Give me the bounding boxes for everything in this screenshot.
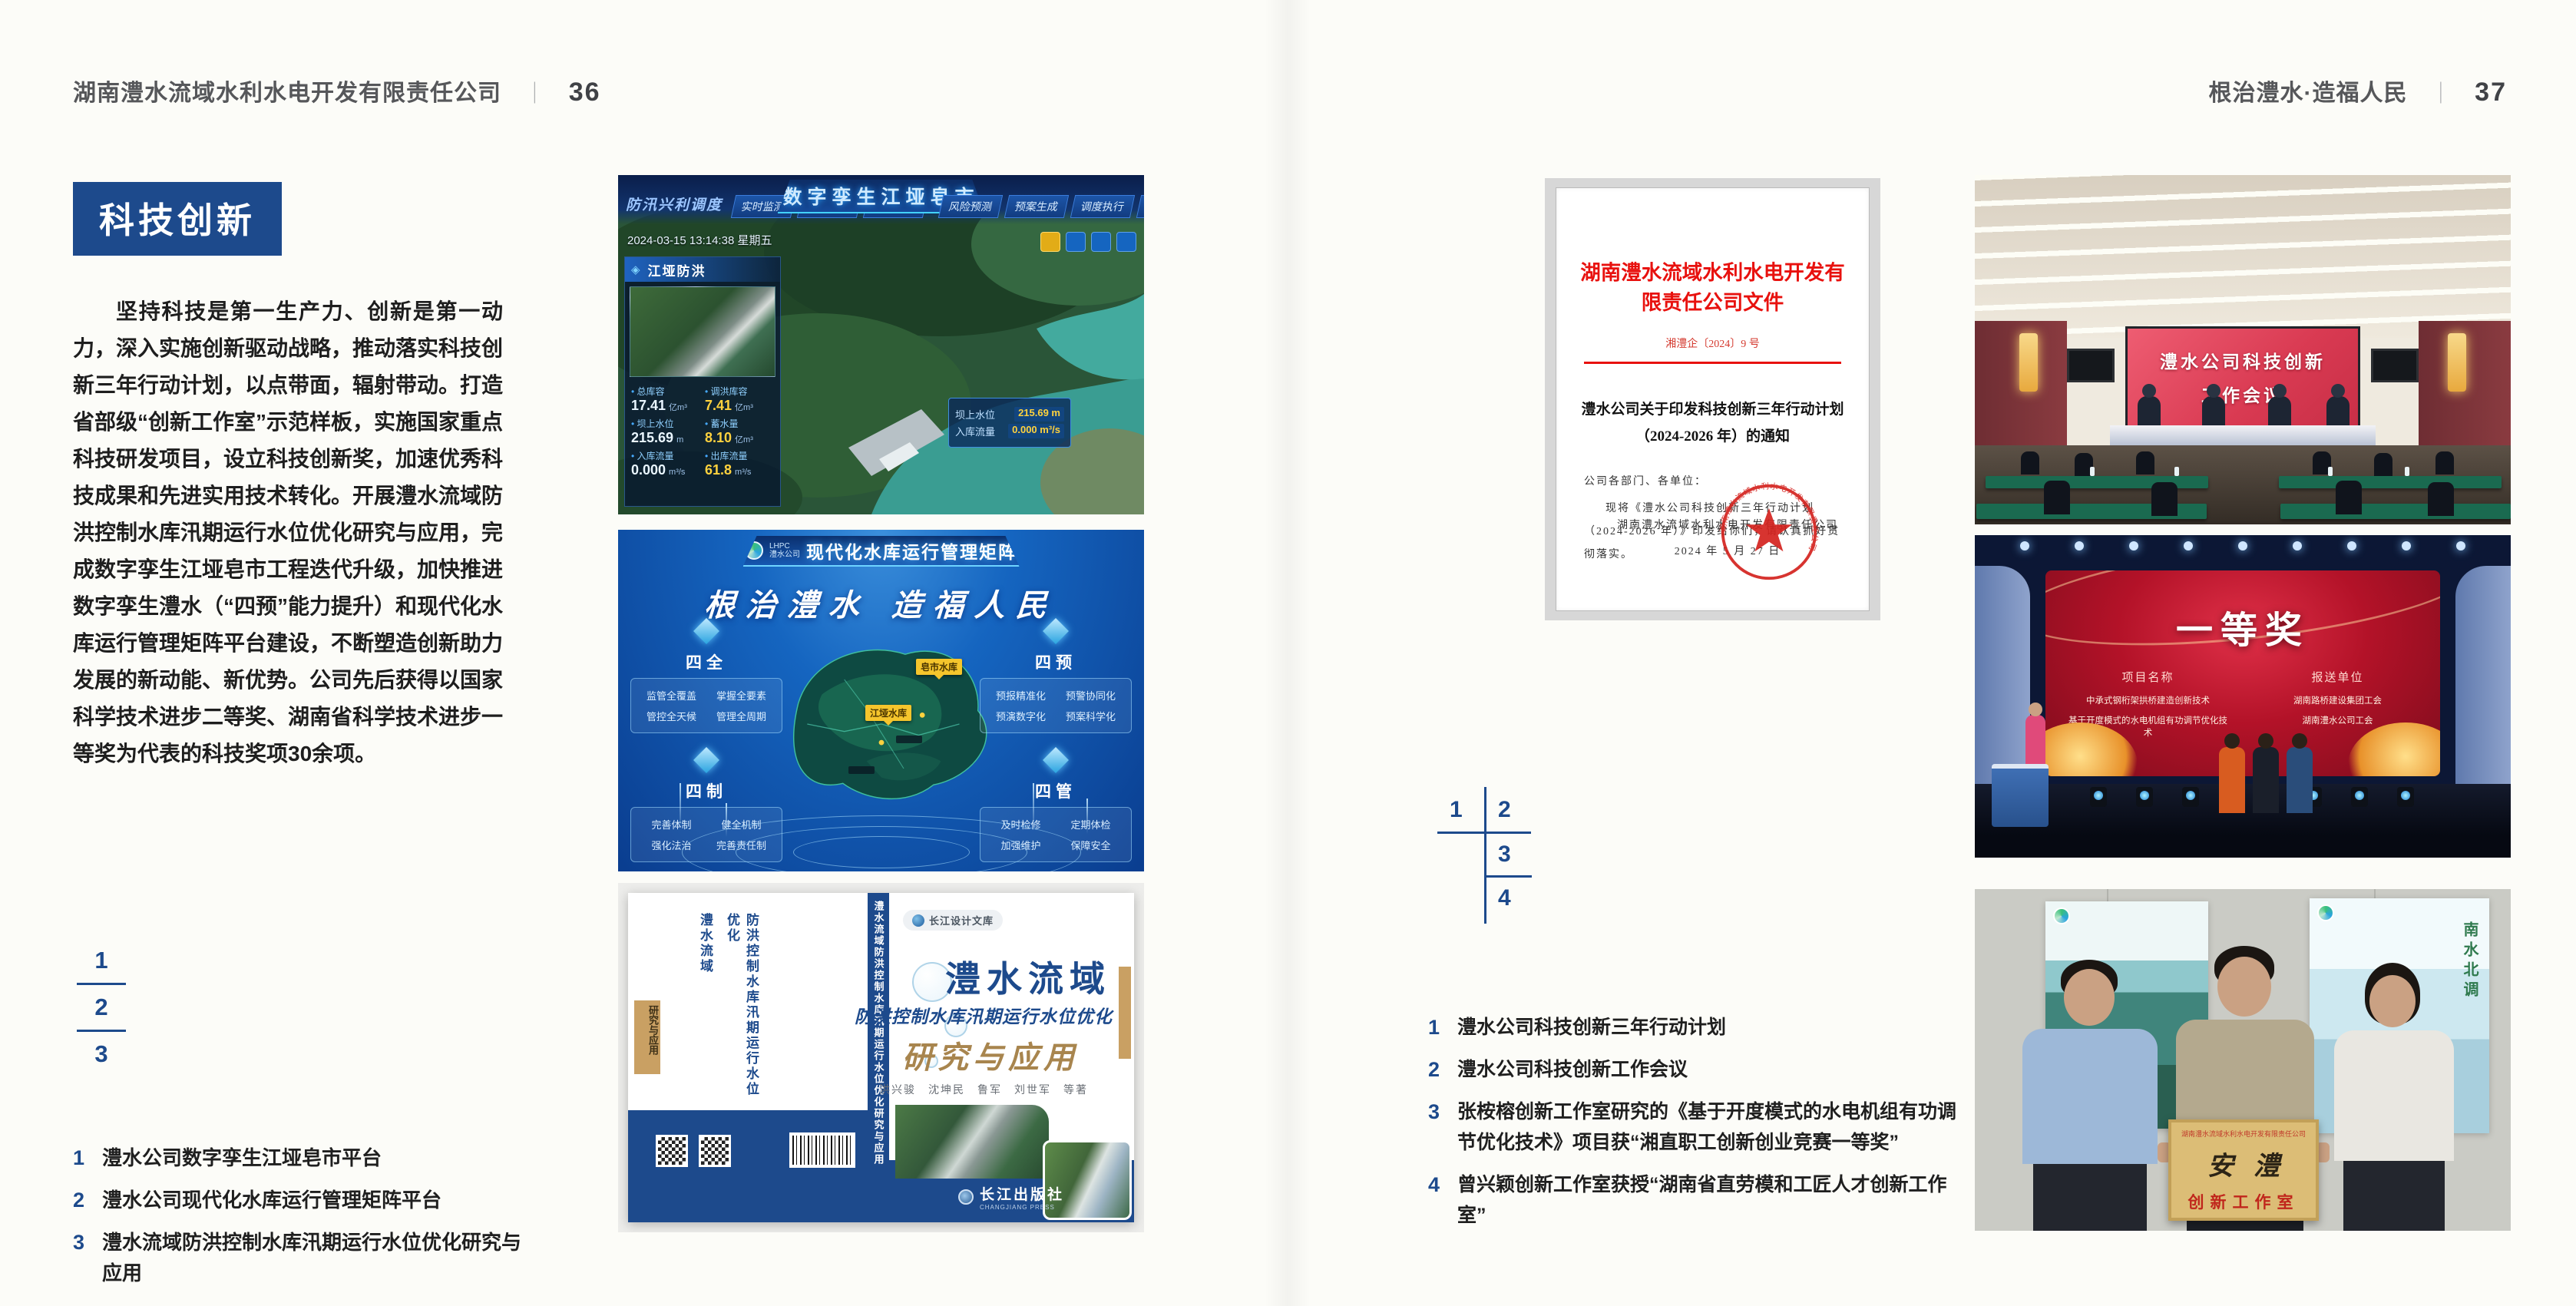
right-page-header: 根治澧水·造福人民 ｜ 37 [2208,74,2507,107]
stage-spotlights [1975,541,2511,551]
platform-corner-label: 防汛兴利调度 [626,193,723,214]
stage-light-fixture [2136,787,2153,807]
page-number-left: 36 [569,78,601,107]
layers-icon [1066,232,1086,252]
water-bottle [2174,467,2179,476]
awardee-blue-figure [2287,747,2313,813]
figure-index-number: 1 [1450,797,1463,823]
lectern [1992,764,2049,827]
tab-risk-forecast: 风险预测 [938,195,1003,218]
attendee-silhouette [2151,482,2178,516]
header-separator: ｜ [2430,81,2452,105]
basin-terrain-map [755,613,1008,835]
caption-row: 3 澧水流域防洪控制水库汛期运行水位优化研究与应用 [73,1227,534,1288]
figure-first-prize-award-photo: 一等奖 项目名称 中承式钢桁架拱桥建造创新技术 基于开度模式的水电机组有功调节优… [1975,535,2511,858]
caption-number: 3 [73,1227,102,1288]
light-pillar [1033,783,1034,831]
figure-innovation-work-meeting-photo: 澧水公司科技创新 工作会议 [1975,175,2511,524]
stat-storage: 蓄水量 8.10亿m³ [705,417,774,446]
page-number-right: 37 [2475,78,2507,107]
ceiling-light-strips [1975,175,2511,338]
matrix-title: 现代化水库运行管理矩阵 [806,537,1017,564]
person-trousers [2343,1161,2445,1231]
caption-text: 澧水公司科技创新三年行动计划 [1457,1012,1726,1043]
dam-thumbnail-photo [630,286,775,377]
book-cover-flat: 澧水流域防洪控制水库汛期运行水位优化研究与应用 澧水流域 防洪控制水库汛期运行水… [628,893,1134,1222]
document-title-line2: （2024-2026 年）的通知 [1556,425,1869,445]
stat-inflow: 入库流量 0.000m³/s [631,449,700,478]
head-table [2110,425,2376,445]
lhpc-logo-icon [2317,904,2334,921]
small-station-marker [848,766,875,774]
caption-number: 1 [73,1142,102,1173]
stat-total-capacity: 总库容 17.41亿m³ [631,385,700,414]
award-grade-text: 一等奖 [2045,600,2440,653]
official-seal-icon: 湖南澧水流域水利水电开发有限责任公司 [1717,480,1821,584]
section-title: 科技创新 [73,182,282,256]
attendee-silhouette [2044,481,2070,514]
caption-text: 澧水流域防洪控制水库汛期运行水位优化研究与应用 [102,1227,534,1288]
wall-tv-screen [2067,349,2115,382]
figure-book-cover: 澧水流域防洪控制水库汛期运行水位优化研究与应用 澧水流域 防洪控制水库汛期运行水… [618,883,1144,1232]
awardee-orange-figure [2219,747,2245,813]
series-badge-icon [912,914,924,927]
panel-head: 四预 [980,622,1132,673]
figure-index-number: 4 [1498,885,1511,911]
panelist-figure [2326,396,2349,425]
light-pillar [680,783,681,829]
attendee-silhouette [2374,453,2392,476]
caption-row: 1 澧水公司数字孪生江垭皂市平台 [73,1142,534,1173]
left-captions: 1 澧水公司数字孪生江垭皂市平台 2 澧水公司现代化水库运行管理矩阵平台 3 澧… [73,1142,534,1300]
publisher-block: 长江出版社 CHANGJIANG PRESS [958,1183,1064,1211]
stage-light-fixture [2397,787,2414,807]
alert-icon [1116,232,1136,252]
panelist-figure [2268,396,2291,425]
caption-row: 3 张桉榕创新工作室研究的《基于开度模式的水电机组有功调节优化技术》项目获“湘直… [1428,1096,1966,1158]
qr-code [656,1135,688,1167]
water-bottle [2090,467,2095,476]
caption-number: 2 [73,1185,102,1215]
person-head [2064,969,2115,1026]
award-led-screen: 一等奖 项目名称 中承式钢桁架拱桥建造创新技术 基于开度模式的水电机组有功调节优… [2045,570,2440,776]
person-head [2217,957,2271,1017]
shield-icon: ◈ [631,263,642,276]
book-title-sub: 防洪控制水库汛期运行水位优化 [855,1002,1113,1028]
lhpc-logo-icon [745,541,763,560]
company-name: 湖南澧水流域水利水电开发有限责任公司 [73,81,501,106]
publisher-name: 长江出版社 [980,1186,1064,1203]
attendee-silhouette [2136,451,2154,474]
water-level-overlay-tag: 坝上水位 215.69 m 入库流量 0.000 m³/s [948,398,1071,448]
document-title-line1: 澧水公司关于印发科技创新三年行动计划 [1572,398,1853,418]
figure-digital-twin-jiangya-zaoshi-platform: 防汛兴利调度 实时监测 洪水预报 防洪预警 数字孪生江垭皂市 风险预测 预案生成… [618,175,1144,514]
matrix-header: LHPC 澧水公司 现代化水库运行管理矩阵 [743,536,1020,567]
meeting-led-screen: 澧水公司科技创新 工作会议 [2128,329,2358,425]
diamond-icon [1043,747,1069,773]
figure-index-number: 2 [77,993,126,1022]
stage-light-fixture [2090,787,2107,807]
panel-head: 四制 [630,751,782,802]
person-trousers [2033,1164,2147,1231]
figure-innovation-studio-plaque-photo: 南水北调 湖南澧水流域水利水电开发有限责任公司 安澧 创新工作室 [1975,889,2511,1231]
changjiang-press-logo-icon [958,1189,974,1205]
header-separator: ｜ [524,81,546,105]
caption-row: 2 澧水公司现代化水库运行管理矩阵平台 [73,1185,534,1215]
panelist-figure [2202,396,2225,425]
caption-row: 4 曾兴颖创新工作室获授“湖南省直劳模和工匠人才创新工作室” [1428,1169,1966,1231]
lhpc-logo-icon [2053,908,2070,924]
reservoir-stats-grid: 总库容 17.41亿m³ 调洪库容 7.41亿m³ 坝上水位 215.69m 蓄… [625,382,780,481]
location-marker-zaoshi: 皂市水库 [916,659,962,675]
series-badge: 长江设计文库 [903,910,1003,931]
small-station-marker [896,736,922,743]
person-white-tee [2334,1030,2454,1161]
isbn-barcode [789,1132,855,1168]
tab-project-inspection: 工程巡检 [1136,195,1144,218]
diamond-icon [1043,618,1069,644]
left-page-header: 湖南澧水流域水利水电开发有限责任公司 ｜ 36 [73,74,601,107]
light-pillar [726,803,727,837]
document-red-rule [1584,362,1841,364]
back-cover-tan-block: 研究与应用 [634,1000,660,1074]
panel-head: 四管 [980,751,1132,802]
slogan: 根治澧水·造福人民 [2208,81,2407,106]
figure-index-number: 1 [77,946,126,975]
person-head [2369,975,2416,1027]
platform-header-bar: 防汛兴利调度 实时监测 洪水预报 防洪预警 数字孪生江垭皂市 风险预测 预案生成… [618,175,1144,224]
book-spine: 澧水流域防洪控制水库汛期运行水位优化研究与应用 [868,893,889,1222]
document-red-header: 湖南澧水流域水利水电开发有限责任公司文件 [1572,256,1853,316]
tab-dispatch-execution: 调度执行 [1070,195,1135,218]
caption-row: 2 澧水公司科技创新工作会议 [1428,1054,1966,1085]
diamond-icon [693,747,719,773]
platform-timestamp: 2024-03-15 13:14:38 星期五 [627,232,772,248]
figure-index-number: 3 [77,1040,126,1069]
stat-water-level: 坝上水位 215.69m [631,417,700,446]
document-number: 湘澧企〔2024〕9 号 [1556,336,1869,351]
caption-text: 张桉榕创新工作室研究的《基于开度模式的水电机组有功调节优化技术》项目获“湘直职工… [1457,1096,1966,1158]
presenter-suit-figure [2253,747,2279,813]
document-page: 湖南澧水流域水利水电开发有限责任公司文件 湘澧企〔2024〕9 号 澧水公司关于… [1556,187,1870,611]
diamond-icon [693,618,719,644]
panel-title: 江垭防洪 [648,260,706,279]
stage-light-fixture [2351,787,2368,807]
caption-text: 澧水公司现代化水库运行管理矩阵平台 [102,1185,441,1215]
caption-number: 3 [1428,1096,1457,1158]
caption-number: 1 [1428,1012,1457,1043]
index-divider [1437,832,1531,834]
panelist-figure [2138,396,2161,425]
front-tan-bar [1119,967,1131,1059]
attendee-silhouette [2021,451,2039,474]
platform-right-tabs: 风险预测 预案生成 调度执行 工程巡检 [941,195,1144,218]
spine-title: 澧水流域防洪控制水库汛期运行水位优化研究与应用 [871,901,886,1165]
poster-calligraphy: 南水北调 [2459,921,2482,1001]
index-divider [77,983,126,985]
figure-reservoir-management-matrix-platform: LHPC 澧水公司 现代化水库运行管理矩阵 根治澧水 造福人民 皂市水库 江垭水… [618,530,1144,871]
lhpc-logo-text: LHPC 澧水公司 [769,542,800,559]
panel-items: 监管全覆盖 掌握全要素 管控全天候 管理全周期 [630,678,782,733]
attendee-silhouette [2428,482,2454,516]
wall-lamp [2448,333,2466,392]
plaque-label: 创新工作室 [2171,1190,2316,1213]
location-marker-jiangya: 江垭水库 [865,705,911,721]
plaque-company-line: 湖南澧水流域水利水电开发有限责任公司 [2171,1129,2316,1139]
wall-tv-screen [2371,349,2419,382]
figure-official-document: 湖南澧水流域水利水电开发有限责任公司文件 湘澧企〔2024〕9 号 澧水公司关于… [1545,178,1880,620]
water-bottle [2405,467,2409,476]
caption-text: 曾兴颖创新工作室获授“湖南省直劳模和工匠人才创新工作室” [1457,1169,1966,1231]
right-captions: 1 澧水公司科技创新三年行动计划 2 澧水公司科技创新工作会议 3 张桉榕创新工… [1428,1012,1966,1242]
panel-head: 四全 [630,622,782,673]
stat-outflow: 出库流量 61.8m³/s [705,449,774,478]
book-title-main: 澧水流域 [945,951,1111,1002]
overlay-row: 入库流量 0.000 m³/s [955,424,1064,438]
caption-number: 2 [1428,1054,1457,1085]
green-desk-row [2280,504,2511,519]
overlay-row: 坝上水位 215.69 m [955,407,1064,422]
book-title-tail: 研究与应用 [902,1033,1079,1077]
figure-index-number: 3 [1498,841,1511,868]
panel-siyu: 四预 预报精准化 预警协同化 预演数字化 预案科学化 [980,622,1132,733]
stage-side-panel [2455,566,2511,819]
platform-toolbar-icons [1040,232,1136,252]
green-desk-row [2279,476,2502,488]
innovation-studio-plaque: 湖南澧水流域水利水电开发有限责任公司 安澧 创新工作室 [2168,1119,2319,1221]
back-cover-title: 澧水流域 防洪控制水库汛期运行水位优化 [696,913,761,1097]
body-paragraph: 坚持科技是第一生产力、创新是第一动力，深入实施创新驱动战略，推动落实科技创新三年… [73,293,503,772]
wall-lamp [2019,333,2038,392]
stage-light-fixture [2182,787,2199,807]
caption-text: 澧水公司科技创新工作会议 [1457,1054,1688,1085]
dam-photo-front [895,1105,1049,1179]
panel-siquan: 四全 监管全覆盖 掌握全要素 管控全天候 管理全周期 [630,622,782,733]
attendee-silhouette [2435,451,2454,474]
panel-header: ◈ 江垭防洪 [625,257,780,282]
magazine-spread: 湖南澧水流域水利水电开发有限责任公司 ｜ 36 根治澧水·造福人民 ｜ 37 科… [0,0,2576,1306]
book-authors: 洪兴骏 沈坤民 鲁军 刘世军 等著 [879,1082,1088,1097]
left-figure-index: 1 2 3 [77,946,126,1069]
panel-items: 预报精准化 预警协同化 预演数字化 预案科学化 [980,678,1132,733]
stat-flood-capacity: 调洪库容 7.41亿m³ [705,385,774,414]
index-divider [77,1030,126,1032]
page-gutter [1265,0,1311,1306]
index-divider [1484,787,1486,924]
locate-icon [1091,232,1111,252]
person-blue-polo [2022,1029,2158,1164]
user-icon [1040,232,1060,252]
water-bottle [2328,467,2333,476]
attendee-silhouette [2336,481,2362,514]
tab-plan-generation: 预案生成 [1004,195,1069,218]
ripple-ring [793,836,970,868]
light-pillar [1086,798,1088,834]
caption-text: 澧水公司数字孪生江垭皂市平台 [102,1142,382,1173]
qr-code [699,1135,731,1167]
figure-index-number: 2 [1498,797,1511,823]
jiangya-flood-panel: ◈ 江垭防洪 总库容 17.41亿m³ 调洪库容 7.41亿m³ 坝上水位 21… [624,256,781,507]
plaque-calligraphy: 安澧 [2171,1145,2316,1182]
publisher-name-en: CHANGJIANG PRESS [980,1204,1064,1211]
caption-row: 1 澧水公司科技创新三年行动计划 [1428,1012,1966,1043]
index-divider [1484,875,1532,878]
caption-number: 4 [1428,1169,1457,1231]
